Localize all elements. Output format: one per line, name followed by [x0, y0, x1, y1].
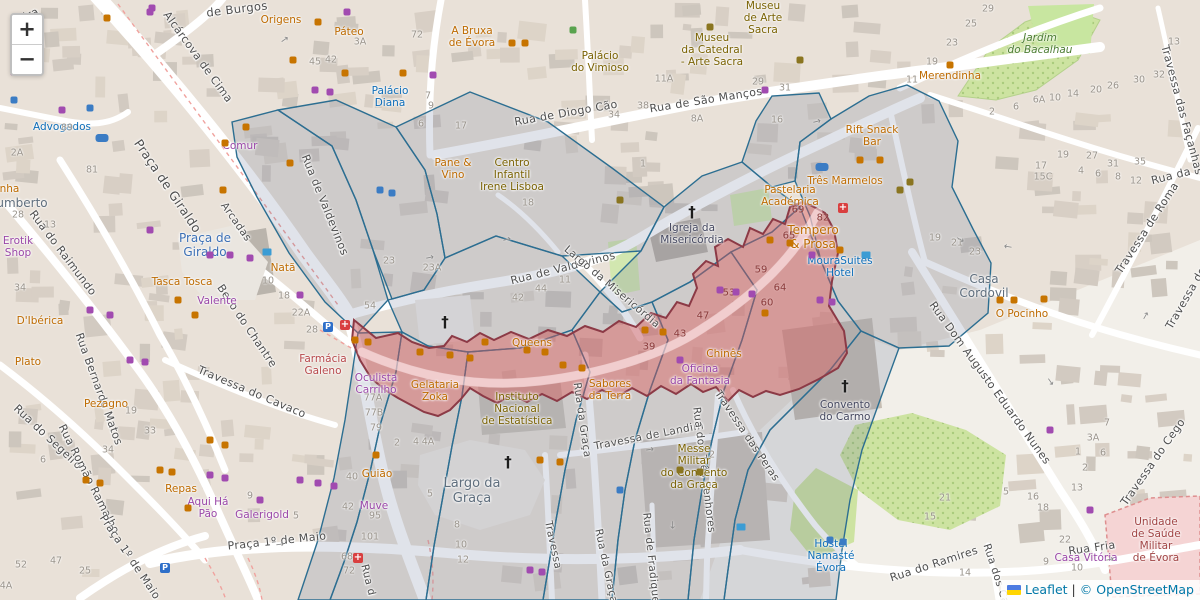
building: [1183, 454, 1192, 462]
building: [561, 100, 586, 120]
building: [1054, 444, 1081, 457]
building: [313, 41, 330, 56]
attribution-bar: Leaflet | © OpenStreetMap: [1001, 580, 1200, 600]
building: [44, 31, 60, 47]
building: [995, 156, 1019, 170]
building: [1055, 365, 1080, 383]
building: [1095, 443, 1110, 457]
ukraine-flag-icon: [1007, 585, 1021, 595]
building: [239, 453, 253, 462]
building: [117, 426, 135, 440]
building: [102, 361, 121, 377]
building: [1079, 405, 1108, 425]
building: [221, 420, 235, 438]
building: [853, 22, 880, 35]
building: [1094, 371, 1108, 386]
building: [284, 341, 305, 350]
building: [527, 66, 547, 80]
building: [16, 159, 31, 173]
zoom-out-button[interactable]: −: [12, 45, 42, 74]
building: [670, 73, 686, 95]
building: [48, 431, 63, 444]
building: [1149, 232, 1172, 254]
building: [95, 77, 105, 98]
building: [846, 41, 859, 57]
building: [728, 32, 752, 39]
building: [189, 149, 210, 168]
building: [630, 36, 645, 53]
building: [1089, 258, 1108, 266]
building: [555, 49, 578, 60]
attribution-separator: |: [1072, 582, 1076, 597]
building: [650, 24, 663, 38]
building: [82, 569, 99, 577]
building: [7, 257, 19, 274]
building: [1135, 446, 1150, 461]
building: [336, 65, 351, 85]
building: [1066, 404, 1075, 425]
building: [1118, 372, 1142, 387]
building: [30, 270, 41, 283]
building: [154, 111, 167, 123]
building: [1027, 171, 1053, 191]
building: [1151, 278, 1168, 297]
building: [1086, 456, 1096, 471]
building: [261, 367, 272, 385]
building: [1074, 268, 1100, 287]
building: [103, 176, 121, 195]
building: [1018, 522, 1045, 544]
building: [497, 32, 507, 43]
zoom-in-button[interactable]: +: [12, 15, 42, 45]
building: [248, 508, 261, 522]
building: [5, 123, 18, 130]
building: [105, 499, 125, 516]
building: [1166, 261, 1178, 270]
building: [1157, 410, 1186, 427]
building: [381, 97, 402, 113]
building: [517, 21, 547, 42]
map-viewport[interactable]: ceiraPraça de GiraldoAlcárcova de Cimade…: [0, 0, 1200, 600]
building: [109, 203, 123, 216]
building: [788, 3, 806, 22]
building: [1121, 394, 1133, 403]
building: [136, 420, 151, 439]
building: [603, 55, 624, 75]
building: [32, 287, 54, 298]
building: [985, 334, 1003, 355]
building: [500, 48, 520, 63]
building: [254, 439, 263, 450]
osm-link[interactable]: © OpenStreetMap: [1080, 582, 1194, 597]
zoom-control: + −: [10, 13, 44, 76]
building: [1127, 212, 1144, 224]
building: [621, 142, 640, 153]
building: [364, 94, 374, 108]
building: [715, 6, 729, 26]
building: [682, 4, 701, 16]
building: [174, 328, 183, 339]
building: [164, 13, 186, 28]
osm-copyright: © OpenStreetMap: [1080, 582, 1194, 597]
building: [1053, 200, 1079, 218]
building: [61, 516, 83, 530]
building: [690, 53, 708, 75]
building: [320, 58, 338, 73]
building: [9, 431, 22, 447]
building: [163, 380, 181, 402]
building: [634, 162, 660, 172]
building: [754, 74, 766, 83]
building: [58, 303, 68, 315]
building: [78, 5, 94, 22]
building: [1020, 354, 1046, 363]
building: [1072, 191, 1081, 201]
building: [18, 408, 38, 426]
building: [304, 454, 316, 463]
building: [258, 78, 285, 93]
building: [1032, 322, 1052, 330]
building: [112, 140, 125, 152]
building: [381, 90, 402, 98]
building: [382, 45, 395, 56]
building: [98, 467, 112, 485]
building: [870, 50, 892, 64]
building: [1050, 271, 1068, 286]
building: [645, 131, 658, 141]
building: [62, 46, 80, 58]
building: [337, 16, 356, 26]
building: [691, 28, 704, 48]
building: [773, 62, 800, 83]
leaflet-link[interactable]: Leaflet: [1025, 582, 1068, 597]
building: [1100, 365, 1120, 373]
building: [475, 29, 491, 38]
building: [138, 395, 147, 403]
building: [274, 312, 295, 324]
building: [930, 350, 945, 357]
building: [196, 54, 214, 67]
building: [841, 4, 858, 18]
building: [140, 344, 150, 362]
building: [1096, 170, 1108, 183]
map-canvas: [0, 0, 1200, 600]
building: [619, 45, 633, 58]
building: [207, 88, 221, 97]
building: [683, 24, 692, 31]
